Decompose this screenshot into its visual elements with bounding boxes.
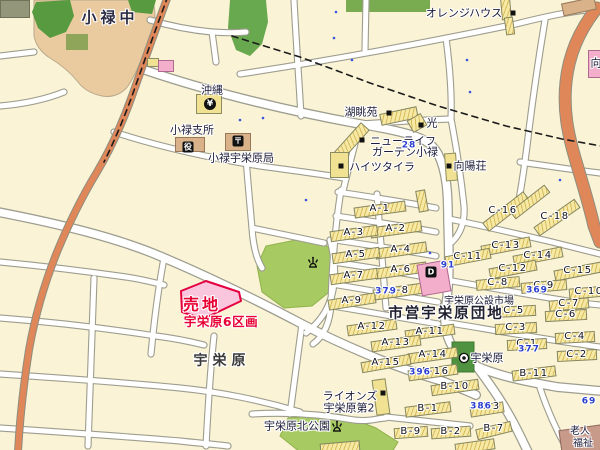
label-orange-house: オレンジハウス [426, 8, 502, 19]
apartment-bar [415, 189, 429, 212]
label-uebaru: 宇栄原 [194, 354, 251, 368]
block-label-A-5: A-5 [345, 250, 366, 260]
building [561, 0, 597, 16]
block-label-C-15: C-15 [563, 266, 592, 276]
block-label-B-9: B-9 [400, 427, 421, 437]
block-label-A-1: A-1 [369, 204, 390, 214]
label-koyoso: 向陽荘 [454, 161, 487, 172]
block-label-A-3: A-3 [343, 228, 364, 238]
label-oroku-branch-office: 小禄支所 [170, 125, 214, 136]
block-label-C-7: C-7 [558, 299, 579, 309]
bank-icon: ¥ [204, 98, 216, 110]
block-label-A-11: A-11 [416, 327, 445, 337]
label-hikari: 光 [427, 118, 438, 129]
building-orange-house-2 [503, 16, 514, 35]
block-label-B-7: B-7 [483, 424, 504, 434]
label-kochoen: 湖眺苑 [345, 107, 378, 118]
block-label-C-18: C-18 [540, 212, 569, 222]
block-label-C-2: C-2 [566, 350, 587, 360]
block-label-C-14: C-14 [523, 251, 552, 261]
building-marker-icon [511, 11, 516, 16]
department-store-icon: D [426, 267, 437, 278]
block-label-B-2: B-2 [440, 427, 461, 437]
block-label-C-10: C-10 [574, 287, 600, 297]
block-label-A-14: A-14 [419, 350, 448, 360]
block-label-A-2: A-2 [385, 224, 406, 234]
block-label-A-7: A-7 [343, 271, 364, 281]
label-shiei-uebaru-danchi: 市営宇栄原団地 [388, 307, 504, 322]
block-label-C-4: C-4 [564, 332, 585, 342]
block-label-386: 386 [470, 403, 492, 412]
block-label-69: 69 [582, 398, 597, 407]
building-marker-icon [387, 111, 392, 116]
label-rojin-line1: 老人 [570, 427, 590, 437]
block-label-C-8: C-8 [487, 278, 508, 288]
building [0, 0, 30, 18]
building [158, 60, 174, 72]
label-oroku-uebaru-post-office: 小禄宇栄原局 [208, 153, 274, 164]
post-office-icon-glyph: 〒 [234, 136, 242, 147]
apartment-bar [320, 440, 361, 450]
bus-stop-icon [458, 352, 470, 364]
sale-site-label: 売地 [183, 297, 221, 313]
block-label-91: 91 [441, 262, 456, 271]
block-label-C-12: C-12 [498, 264, 527, 274]
building-marker-icon [360, 138, 365, 143]
block-label-369: 369 [526, 287, 548, 296]
map-features-layer: 役〒¥D小禄中オレンジハウス沖縄湖眺苑光ニューライフガーデン小禄ハイツタイラ向陽… [0, 0, 600, 450]
label-mukai-partial: 向 [591, 58, 600, 69]
block-label-396: 396 [409, 369, 431, 378]
block-label-B-11: B-11 [519, 369, 548, 379]
town-office-icon: 役 [183, 142, 194, 153]
block-label-C-16: C-16 [488, 206, 517, 216]
block-label-C-11: C-11 [453, 252, 482, 262]
label-lions-line1: ライオンズ [323, 391, 378, 402]
sale-site-sublabel: 宇栄原6区画 [184, 316, 258, 329]
label-lions-line2: 宇栄原第2 [324, 403, 375, 414]
park-fountain-icon [306, 256, 320, 268]
block-label-A-9: A-9 [341, 296, 362, 306]
block-label-A-15: A-15 [372, 358, 401, 368]
block-label-A-13: A-13 [382, 338, 411, 348]
park-fountain-icon [330, 420, 344, 432]
label-uebaru-kita-park: 宇栄原北公園 [264, 421, 330, 432]
block-label-A-6: A-6 [390, 265, 411, 275]
block-label-377: 377 [518, 346, 540, 355]
block-label-A-4: A-4 [390, 245, 411, 255]
town-office-icon-glyph: 役 [184, 142, 192, 153]
block-label-C-13: C-13 [491, 241, 520, 251]
apartment-bar [454, 438, 495, 450]
block-label-A-12: A-12 [358, 322, 387, 332]
block-label-C-3: C-3 [505, 323, 526, 333]
label-heights-taira: ハイツタイラ [349, 162, 415, 173]
building-marker-icon [419, 123, 424, 128]
label-rojin-line2: 福祉 [573, 439, 593, 449]
block-label-C-6: C-6 [555, 310, 576, 320]
block-label-B-1: B-1 [417, 404, 438, 414]
bank-icon-glyph: ¥ [207, 99, 213, 109]
block-label-28: 28 [402, 142, 417, 151]
building-marker-icon [447, 164, 452, 169]
building-marker-icon [339, 164, 344, 169]
block-label-379: 379 [375, 288, 397, 297]
block-label-C-5: C-5 [503, 306, 524, 316]
block-label-B-10: B-10 [440, 382, 469, 392]
post-office-icon: 〒 [233, 136, 244, 147]
label-uebaru-bus-stop: 宇栄原 [471, 353, 504, 364]
department-store-icon-glyph: D [428, 268, 435, 277]
label-okinawa-bank: 沖縄 [201, 85, 223, 96]
label-oroku-junior-high: 小禄中 [81, 11, 138, 26]
map-canvas: 役〒¥D小禄中オレンジハウス沖縄湖眺苑光ニューライフガーデン小禄ハイツタイラ向陽… [0, 0, 600, 450]
building-marker-icon [381, 391, 386, 396]
